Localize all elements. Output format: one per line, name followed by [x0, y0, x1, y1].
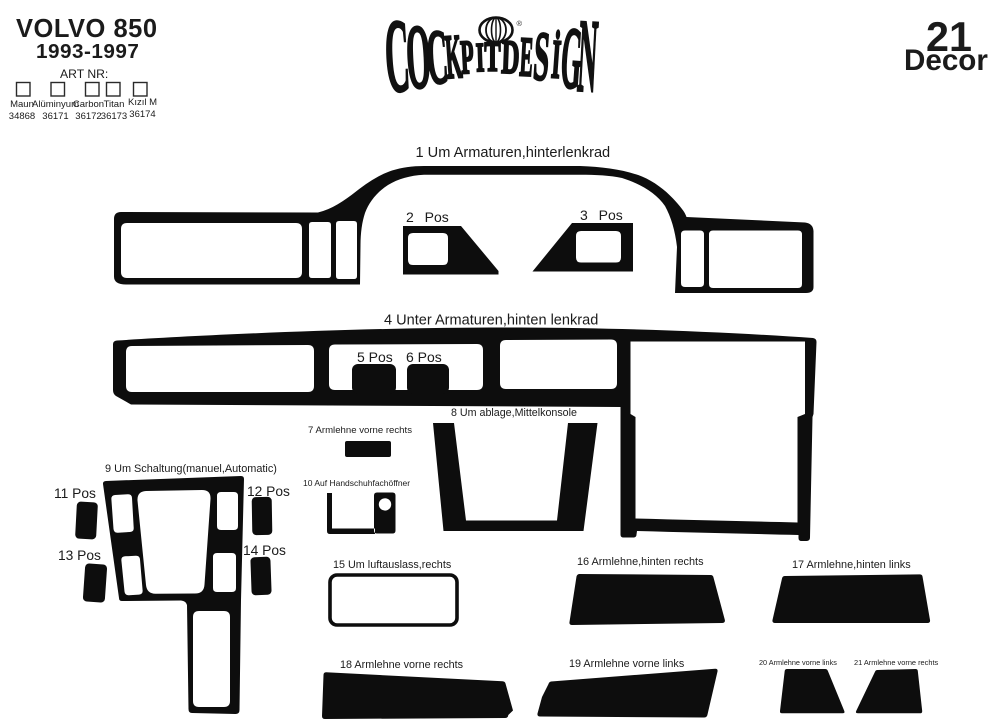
svg-text:36174: 36174 [129, 109, 155, 120]
svg-text:Kızıl M: Kızıl M [128, 97, 157, 108]
svg-text:1 Um Armaturen,hinterlenkrad: 1 Um Armaturen,hinterlenkrad [416, 145, 611, 161]
svg-text:36171: 36171 [42, 111, 68, 122]
svg-text:20 Armlehne vorne links: 20 Armlehne vorne links [759, 658, 837, 667]
svg-text:®: ® [517, 19, 523, 28]
svg-text:Decor: Decor [904, 44, 988, 77]
svg-text:P: P [459, 31, 475, 84]
svg-text:16 Armlehne,hinten rechts: 16 Armlehne,hinten rechts [577, 556, 704, 568]
svg-text:18 Armlehne vorne rechts: 18 Armlehne vorne rechts [340, 659, 464, 671]
svg-text:12 Pos: 12 Pos [247, 484, 290, 499]
svg-text:14 Pos: 14 Pos [243, 543, 286, 558]
svg-text:36172: 36172 [75, 111, 101, 122]
svg-text:15 Um luftauslass,rechts: 15 Um luftauslass,rechts [333, 559, 452, 571]
svg-text:21 Armlehne vorne rechts: 21 Armlehne vorne rechts [854, 658, 939, 667]
svg-text:17 Armlehne,hinten links: 17 Armlehne,hinten links [792, 559, 911, 571]
svg-text:7 Armlehne vorne rechts: 7 Armlehne vorne rechts [308, 425, 412, 436]
svg-text:11 Pos: 11 Pos [54, 486, 96, 501]
svg-text:I: I [475, 36, 485, 81]
svg-text:10 Auf Handschuhfachöffner: 10 Auf Handschuhfachöffner [303, 478, 410, 488]
svg-text:36173: 36173 [101, 111, 127, 122]
svg-text:9 Um Schaltung(manuel,Automat: 9 Um Schaltung(manuel,Automatic) [105, 463, 277, 475]
svg-text:ART NR:: ART NR: [60, 67, 108, 81]
svg-text:VOLVO 850: VOLVO 850 [16, 15, 158, 43]
svg-text:1993-1997: 1993-1997 [36, 40, 139, 63]
svg-text:2 Pos: 2 Pos [406, 209, 449, 225]
svg-text:34868: 34868 [9, 111, 35, 122]
svg-text:19 Armlehne vorne links: 19 Armlehne vorne links [569, 658, 685, 670]
svg-text:Carbon: Carbon [73, 99, 104, 110]
svg-text:Titan: Titan [104, 99, 125, 110]
svg-text:4 Unter Armaturen,hinten lenk: 4 Unter Armaturen,hinten lenkrad [384, 313, 598, 329]
svg-text:Maun: Maun [10, 99, 34, 110]
svg-text:13 Pos: 13 Pos [58, 548, 101, 563]
svg-text:6 Pos: 6 Pos [406, 349, 442, 365]
svg-text:3 Pos: 3 Pos [580, 207, 623, 223]
svg-text:5 Pos: 5 Pos [357, 349, 393, 365]
svg-text:8 Um ablage,Mittelkonsole: 8 Um ablage,Mittelkonsole [451, 407, 577, 419]
